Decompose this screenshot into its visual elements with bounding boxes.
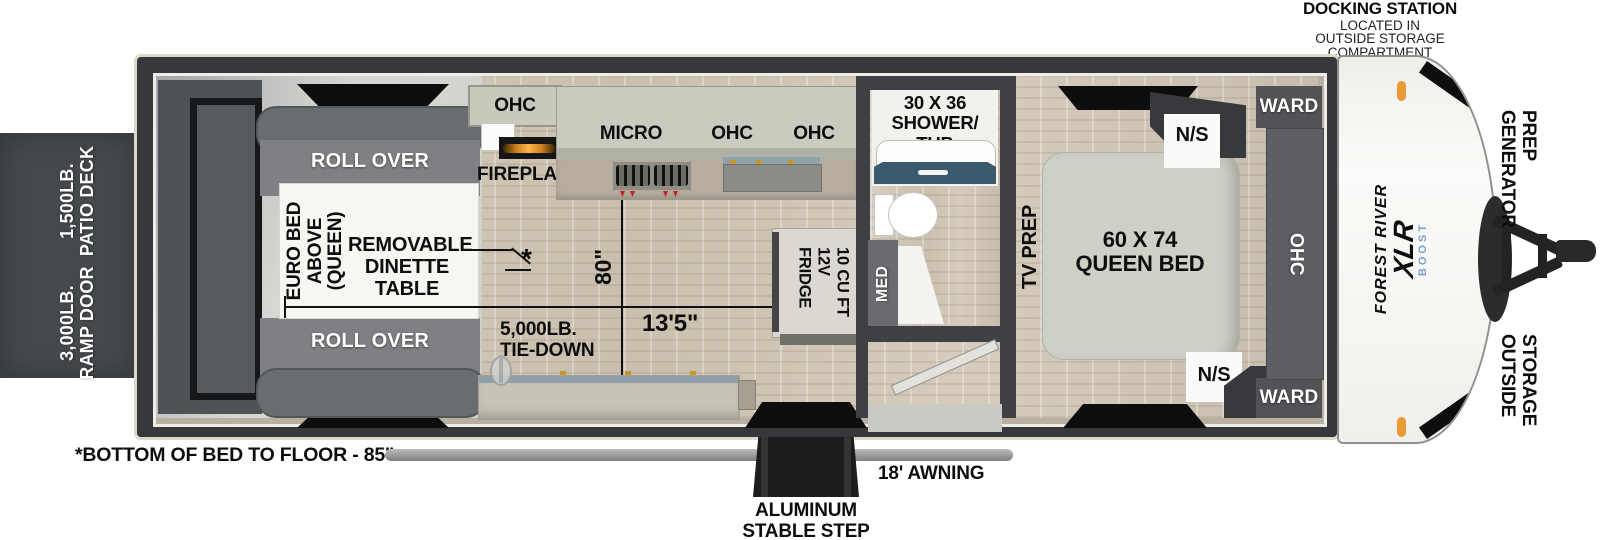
ohc-mid-label: OHC bbox=[708, 124, 756, 145]
hinge bbox=[756, 160, 762, 164]
floorplan-diagram: DOCKING STATION LOCATED IN OUTSIDE STORA… bbox=[0, 0, 1600, 540]
clearance-light-bottom bbox=[1397, 417, 1406, 437]
dinette-asterisk: * bbox=[521, 244, 532, 275]
docking-station-title: DOCKING STATION bbox=[1255, 0, 1505, 19]
ohc-left-label: OHC bbox=[494, 96, 536, 117]
bedroom-ohc-cabinet: OHC bbox=[1266, 128, 1324, 380]
dinette-leader-line bbox=[462, 249, 514, 251]
tie-down-anchor bbox=[490, 356, 512, 386]
clearance-light-top bbox=[1397, 81, 1406, 101]
fireplace bbox=[499, 137, 559, 159]
dim-80-label: 80" bbox=[591, 239, 617, 295]
kitchen-divider-wall bbox=[856, 76, 868, 418]
awning-bar bbox=[385, 449, 1013, 461]
cooktop bbox=[613, 162, 691, 190]
tub-front bbox=[874, 162, 996, 184]
hinge bbox=[625, 371, 631, 375]
ramp-door-label: 3,000LB. RAMP DOOR bbox=[56, 223, 100, 423]
step-rail bbox=[761, 437, 768, 497]
flip-counter-panel bbox=[723, 164, 822, 192]
hitch-coupler bbox=[1556, 240, 1596, 262]
awning-label: 18' AWNING bbox=[878, 464, 1018, 485]
tie-down-pin bbox=[499, 355, 503, 383]
front-cap: FOREST RIVER XLR BOOST bbox=[1337, 55, 1497, 444]
step-label: ALUMINUM STABLE STEP bbox=[726, 501, 886, 540]
window-bottom-kitchen bbox=[745, 402, 867, 428]
toilet-bowl bbox=[888, 192, 938, 238]
ns-bottom-label: N/S bbox=[1186, 364, 1242, 386]
bathroom-bottom-wall bbox=[856, 326, 1014, 342]
micro-label: MICRO bbox=[598, 124, 664, 145]
ramp-door-frame bbox=[190, 98, 262, 400]
bedroom-ohc-label: OHC bbox=[1285, 233, 1306, 276]
dim-135-line bbox=[285, 306, 775, 308]
cooktop-grate-left bbox=[616, 165, 650, 186]
window-top-left bbox=[297, 84, 449, 106]
cooktop-grate-right bbox=[654, 165, 688, 186]
fridge-label: 10 CU FT 12V FRIDGE bbox=[792, 234, 854, 330]
bedroom-divider-wall bbox=[1000, 76, 1016, 418]
hinge bbox=[788, 160, 794, 164]
hitch-crossbar-rear bbox=[1538, 234, 1547, 278]
counter-blue-strip bbox=[723, 157, 820, 164]
tie-down-label: 5,000LB. TIE-DOWN bbox=[500, 320, 610, 362]
dim-135-label: 13'5" bbox=[642, 311, 698, 337]
outside-storage-label: OUTSIDE STORAGE bbox=[1496, 334, 1540, 446]
docking-station-line3: OUTSIDE STORAGE bbox=[1255, 32, 1505, 46]
hinge bbox=[560, 371, 566, 375]
fridge-base bbox=[780, 334, 860, 345]
model-name: XLR bbox=[1391, 219, 1416, 279]
hinge bbox=[730, 160, 736, 164]
ohc-right-label: OHC bbox=[790, 124, 838, 145]
entry-step bbox=[753, 437, 859, 497]
docking-station-line2: LOCATED IN bbox=[1255, 19, 1505, 33]
fridge-edge bbox=[772, 232, 779, 332]
docking-station-callout: DOCKING STATION LOCATED IN OUTSIDE STORA… bbox=[1255, 0, 1505, 59]
step-rail bbox=[844, 437, 851, 497]
generator-prep-label: GENERATOR PREP bbox=[1496, 110, 1540, 235]
hinge bbox=[690, 371, 696, 375]
sofa-bottom-bolster bbox=[256, 368, 486, 418]
med-label: MED bbox=[873, 254, 893, 314]
counter-top-strip bbox=[479, 376, 739, 383]
ns-top-label: N/S bbox=[1164, 124, 1220, 146]
dim-80-line bbox=[621, 192, 623, 383]
fireplace-flame bbox=[503, 144, 555, 153]
roll-over-top-label: ROLL OVER bbox=[270, 150, 470, 172]
ward-bottom-label: WARD bbox=[1260, 388, 1319, 409]
brand-logo: FOREST RIVER XLR BOOST bbox=[1366, 129, 1436, 369]
counter-end-box bbox=[738, 380, 756, 410]
bed-height-note: *BOTTOM OF BED TO FLOOR - 85" bbox=[75, 445, 395, 466]
bottom-counter bbox=[478, 375, 740, 420]
ohc-cabinet-left: OHC bbox=[468, 85, 562, 127]
dim-135-tick-left bbox=[284, 296, 286, 318]
wardrobe-top: WARD bbox=[1256, 86, 1322, 128]
window-bottom-bedroom bbox=[1063, 404, 1207, 428]
euro-bed-label: EURO BED ABOVE (QUEEN) bbox=[285, 186, 347, 316]
ward-top-label: WARD bbox=[1260, 97, 1319, 118]
roll-over-bottom-label: ROLL OVER bbox=[270, 330, 470, 352]
queen-bed-label: 60 X 74 QUEEN BED bbox=[1052, 228, 1228, 276]
dinette-table-label: REMOVABLE DINETTE TABLE bbox=[348, 234, 466, 300]
tub-handle bbox=[918, 170, 948, 175]
tv-prep-label: TV PREP bbox=[1018, 192, 1042, 302]
wardrobe-bottom: WARD bbox=[1256, 378, 1322, 418]
entry-doorway bbox=[868, 404, 1002, 432]
